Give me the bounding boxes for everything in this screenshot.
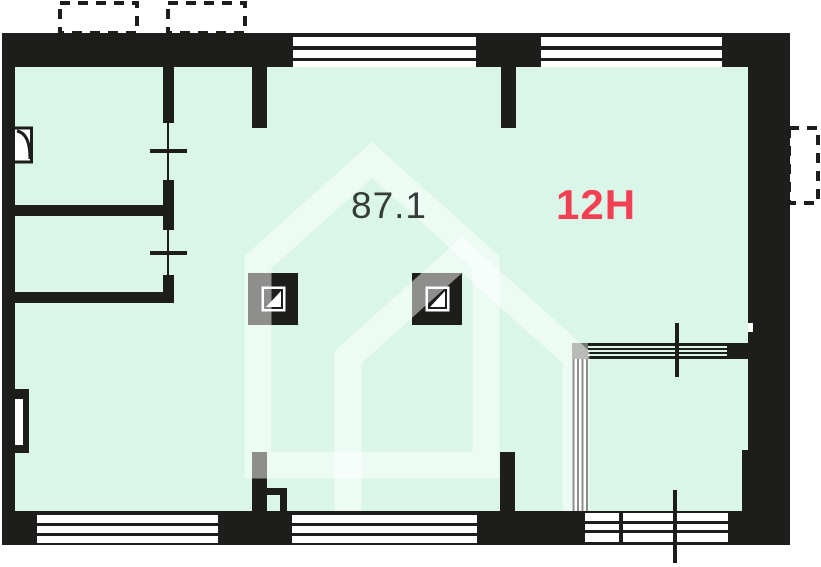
wall-stub <box>500 452 515 511</box>
partition-end-block <box>727 343 748 359</box>
window-tick-icon <box>673 490 677 563</box>
balcony-outline-top-right <box>168 3 245 33</box>
unit-label: 12H <box>556 181 636 229</box>
wall-notch <box>748 323 753 332</box>
outer-wall-left <box>2 33 15 545</box>
window-top-left <box>293 37 476 67</box>
wall-stub <box>252 67 267 128</box>
window-tick-icon <box>675 323 679 377</box>
area-label: 87.1 <box>351 185 427 227</box>
radiator-niche-icon <box>12 389 29 453</box>
outer-wall-right <box>748 33 790 545</box>
outer-wall-right-step <box>742 450 750 511</box>
partition-wall-horizontal <box>13 292 174 303</box>
window-tick-icon <box>150 251 187 255</box>
balcony-outline-top-left <box>60 3 137 33</box>
wall-stub <box>501 67 516 128</box>
wall-stub-return <box>252 488 287 495</box>
interior-floor <box>13 67 748 511</box>
window-bottom-left <box>37 515 218 543</box>
bottom-windows <box>37 513 728 543</box>
balcony-outline-right <box>789 128 818 203</box>
door-swing-icon <box>14 128 32 162</box>
window-bottom-middle <box>292 515 477 543</box>
window-tick-icon <box>150 149 187 153</box>
window-bottom-right-glazed <box>585 513 728 542</box>
floorplan-drawing <box>0 0 821 567</box>
wall-stub-return <box>280 495 287 511</box>
window-top-right <box>541 37 722 67</box>
partition-wall-horizontal <box>13 205 174 216</box>
floorplan-canvas: 87.1 12H <box>0 0 821 567</box>
